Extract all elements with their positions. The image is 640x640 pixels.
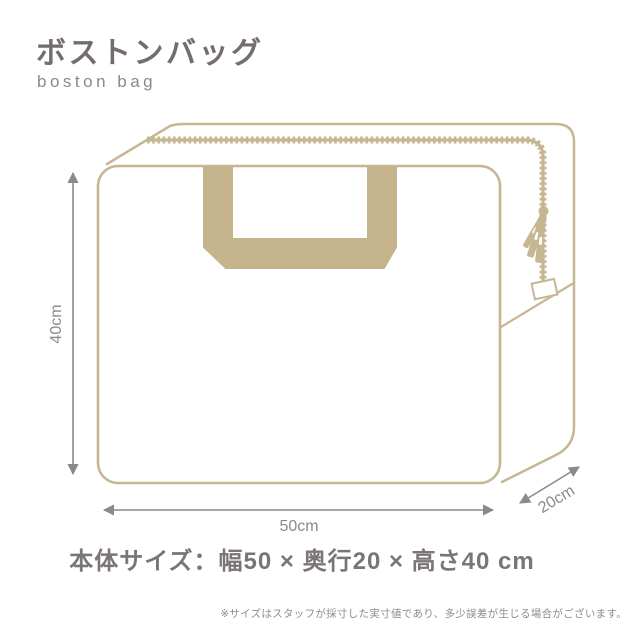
zipper-end-patch (532, 279, 558, 299)
height-dimension-label: 40cm (48, 304, 66, 343)
measurement-disclaimer: ※サイズはスタッフが採寸した実寸値であり、多少誤差が生じる場合がございます。 (220, 606, 627, 621)
width-dimension-label: 50cm (0, 518, 598, 536)
body-size-summary: 本体サイズ：幅50 × 奥行20 × 高さ40 cm (0, 541, 604, 576)
bag-front-face (98, 166, 500, 483)
